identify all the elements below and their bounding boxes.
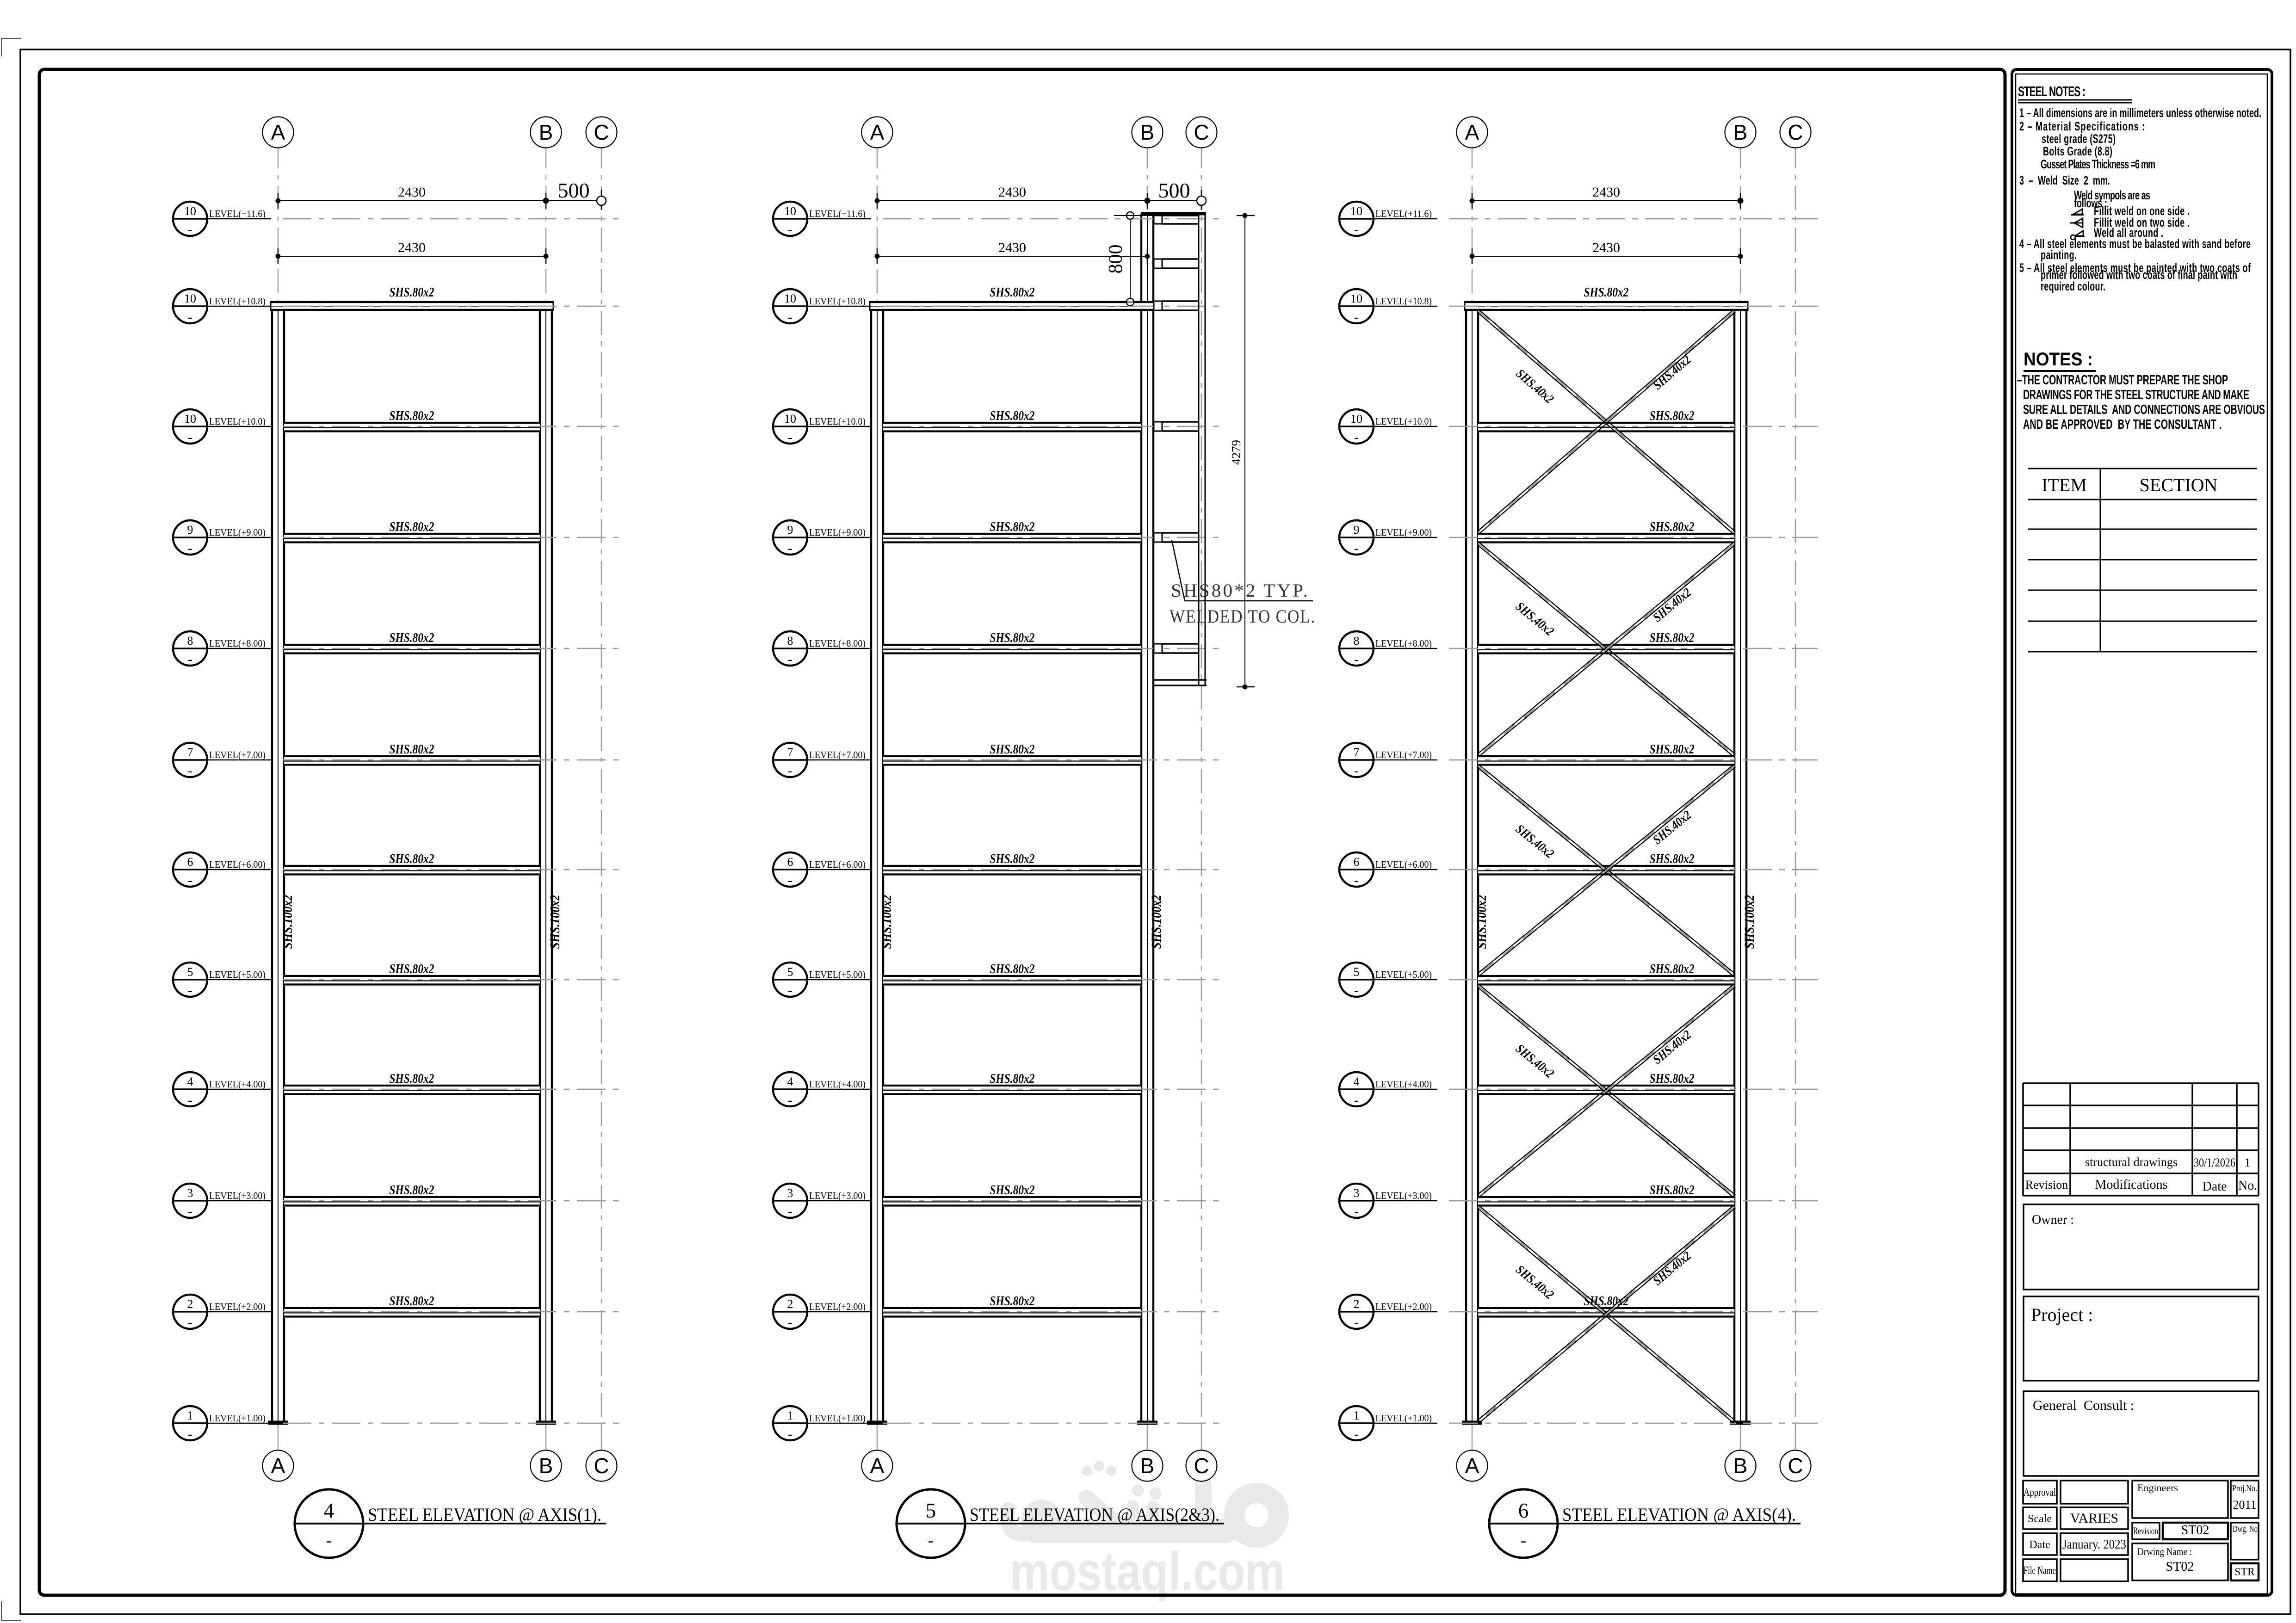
svg-text:C: C bbox=[1788, 1454, 1803, 1478]
svg-text:LEVEL(+10.8): LEVEL(+10.8) bbox=[809, 296, 866, 307]
svg-text:2430: 2430 bbox=[398, 240, 426, 255]
svg-text:-: - bbox=[788, 1092, 792, 1108]
svg-text:VARIES: VARIES bbox=[2070, 1511, 2118, 1526]
svg-text:-: - bbox=[188, 430, 192, 445]
svg-text:Engineers: Engineers bbox=[2137, 1482, 2178, 1493]
svg-text:SHS.80x2: SHS.80x2 bbox=[390, 408, 434, 423]
svg-text:painting.: painting. bbox=[2041, 247, 2077, 261]
svg-text:-: - bbox=[326, 1531, 332, 1549]
svg-text:LEVEL(+8.00): LEVEL(+8.00) bbox=[1375, 638, 1432, 649]
svg-text:-: - bbox=[788, 763, 792, 778]
svg-text:-: - bbox=[788, 1426, 792, 1442]
svg-text:6: 6 bbox=[187, 855, 193, 869]
svg-text:LEVEL(+3.00): LEVEL(+3.00) bbox=[209, 1190, 266, 1201]
svg-text:-: - bbox=[788, 222, 792, 237]
svg-text:January. 2023: January. 2023 bbox=[2062, 1537, 2126, 1552]
svg-text:B: B bbox=[539, 120, 553, 144]
svg-text:LEVEL(+11.6): LEVEL(+11.6) bbox=[809, 208, 866, 219]
svg-text:B: B bbox=[1733, 1454, 1748, 1478]
svg-text:800: 800 bbox=[1105, 245, 1126, 274]
svg-text:10: 10 bbox=[184, 412, 196, 426]
svg-text:mostaql.com: mostaql.com bbox=[1010, 1541, 1285, 1602]
svg-text:Scale: Scale bbox=[2028, 1513, 2052, 1525]
svg-text:500: 500 bbox=[558, 179, 590, 202]
svg-text:Dwg. No: Dwg. No bbox=[2233, 1524, 2258, 1534]
svg-text:LEVEL(+10.8): LEVEL(+10.8) bbox=[1375, 296, 1432, 307]
svg-text:NOTES :: NOTES : bbox=[2024, 349, 2093, 370]
svg-text:LEVEL(+5.00): LEVEL(+5.00) bbox=[809, 969, 866, 980]
svg-text:SHS80*2 TYP.: SHS80*2 TYP. bbox=[1171, 580, 1310, 601]
svg-text:A: A bbox=[870, 120, 885, 144]
svg-text:-: - bbox=[1354, 1204, 1359, 1219]
svg-text:-: - bbox=[1354, 1315, 1359, 1330]
svg-text:File Name: File Name bbox=[2024, 1565, 2056, 1577]
svg-text:SHS.80x2: SHS.80x2 bbox=[1650, 630, 1695, 645]
svg-text:LEVEL(+9.00): LEVEL(+9.00) bbox=[809, 527, 866, 538]
svg-text:-: - bbox=[188, 873, 192, 888]
svg-text:6: 6 bbox=[1518, 1499, 1529, 1522]
svg-text:steel grade (S275): steel grade (S275) bbox=[2042, 131, 2116, 145]
svg-text:LEVEL(+10.0): LEVEL(+10.0) bbox=[209, 416, 266, 427]
svg-text:SHS.80x2: SHS.80x2 bbox=[1584, 1294, 1629, 1308]
svg-text:9: 9 bbox=[187, 523, 193, 537]
svg-text:LEVEL(+6.00): LEVEL(+6.00) bbox=[1375, 859, 1432, 870]
svg-text:LEVEL(+4.00): LEVEL(+4.00) bbox=[1375, 1079, 1432, 1090]
svg-text:5: 5 bbox=[926, 1499, 936, 1522]
svg-text:5: 5 bbox=[187, 965, 193, 979]
svg-text:LEVEL(+9.00): LEVEL(+9.00) bbox=[209, 527, 266, 538]
svg-text:ST02: ST02 bbox=[2181, 1523, 2209, 1537]
svg-text:A: A bbox=[1465, 1454, 1479, 1478]
svg-text:LEVEL(+1.00): LEVEL(+1.00) bbox=[1375, 1413, 1432, 1424]
svg-text:SHS.80x2: SHS.80x2 bbox=[390, 630, 434, 645]
svg-text:LEVEL(+2.00): LEVEL(+2.00) bbox=[209, 1301, 266, 1312]
svg-text:SHS.80x2: SHS.80x2 bbox=[390, 1294, 434, 1308]
svg-text:4: 4 bbox=[187, 1075, 193, 1088]
svg-text:C: C bbox=[594, 120, 609, 144]
svg-text:9: 9 bbox=[787, 523, 793, 537]
svg-text:2011: 2011 bbox=[2233, 1498, 2256, 1512]
svg-text:-: - bbox=[1354, 652, 1359, 667]
svg-text:LEVEL(+11.6): LEVEL(+11.6) bbox=[1375, 208, 1432, 219]
svg-text:5: 5 bbox=[787, 965, 793, 979]
svg-text:SHS.80x2: SHS.80x2 bbox=[990, 519, 1035, 534]
svg-text:-: - bbox=[1354, 763, 1359, 778]
svg-text:required colour.: required colour. bbox=[2041, 279, 2105, 293]
svg-text:-: - bbox=[1354, 873, 1359, 888]
svg-text:STR: STR bbox=[2234, 1566, 2255, 1578]
svg-text:-: - bbox=[1354, 541, 1359, 556]
svg-text:LEVEL(+9.00): LEVEL(+9.00) bbox=[1375, 527, 1432, 538]
svg-text:SHS.80x2: SHS.80x2 bbox=[990, 408, 1035, 423]
svg-text:Drwing Name :: Drwing Name : bbox=[2137, 1546, 2192, 1557]
svg-text:LEVEL(+5.00): LEVEL(+5.00) bbox=[1375, 969, 1432, 980]
svg-text:5: 5 bbox=[1354, 965, 1360, 979]
svg-text:-: - bbox=[788, 873, 792, 888]
svg-text:SHS.80x2: SHS.80x2 bbox=[390, 742, 434, 757]
svg-text:4279: 4279 bbox=[1229, 440, 1243, 465]
svg-text:SHS.100x2: SHS.100x2 bbox=[1742, 895, 1757, 949]
svg-text:SHS.80x2: SHS.80x2 bbox=[1650, 519, 1695, 534]
svg-text:2430: 2430 bbox=[998, 185, 1026, 200]
svg-text:4: 4 bbox=[1354, 1075, 1360, 1088]
svg-text:LEVEL(+1.00): LEVEL(+1.00) bbox=[809, 1413, 866, 1424]
svg-text:C: C bbox=[1194, 120, 1209, 144]
svg-text:-: - bbox=[1354, 430, 1359, 445]
svg-text:WELDED TO COL.: WELDED TO COL. bbox=[1170, 606, 1316, 627]
svg-text:STEEL ELEVATION @ AXIS(4).: STEEL ELEVATION @ AXIS(4). bbox=[1562, 1504, 1796, 1525]
svg-text:STEEL ELEVATION @ AXIS(1).: STEEL ELEVATION @ AXIS(1). bbox=[368, 1504, 601, 1525]
svg-text:4: 4 bbox=[787, 1075, 793, 1088]
svg-text:Revision: Revision bbox=[2133, 1525, 2158, 1537]
svg-text:SHS.80x2: SHS.80x2 bbox=[990, 285, 1035, 300]
svg-text:LEVEL(+1.00): LEVEL(+1.00) bbox=[209, 1413, 266, 1424]
svg-text:-: - bbox=[188, 1092, 192, 1108]
svg-text:SHS.100x2: SHS.100x2 bbox=[280, 895, 295, 949]
svg-text:SHS.80x2: SHS.80x2 bbox=[1650, 742, 1695, 757]
svg-text:LEVEL(+2.00): LEVEL(+2.00) bbox=[1375, 1301, 1432, 1312]
svg-text:SECTION: SECTION bbox=[2140, 475, 2218, 495]
svg-text:Revision: Revision bbox=[2025, 1178, 2068, 1191]
svg-text:3: 3 bbox=[187, 1186, 193, 1200]
svg-text:1: 1 bbox=[1354, 1409, 1360, 1422]
svg-text:-: - bbox=[788, 983, 792, 998]
svg-text:-: - bbox=[188, 652, 192, 667]
svg-text:LEVEL(+3.00): LEVEL(+3.00) bbox=[1375, 1190, 1432, 1201]
svg-text:General Consult :: General Consult : bbox=[2033, 1398, 2134, 1413]
svg-text:LEVEL(+7.00): LEVEL(+7.00) bbox=[809, 749, 866, 760]
svg-text:SHS.80x2: SHS.80x2 bbox=[1650, 1183, 1695, 1197]
svg-text:STEEL NOTES :: STEEL NOTES : bbox=[2018, 83, 2086, 99]
svg-text:-: - bbox=[788, 309, 792, 325]
svg-text:-: - bbox=[788, 652, 792, 667]
svg-text:B: B bbox=[1733, 120, 1748, 144]
svg-text:7: 7 bbox=[787, 746, 793, 759]
svg-text:A: A bbox=[271, 120, 285, 144]
svg-text:10: 10 bbox=[784, 204, 796, 218]
svg-text:LEVEL(+8.00): LEVEL(+8.00) bbox=[209, 638, 266, 649]
svg-text:SHS.80x2: SHS.80x2 bbox=[1650, 852, 1695, 866]
svg-text:-: - bbox=[188, 541, 192, 556]
svg-text:-: - bbox=[1354, 1092, 1359, 1108]
svg-text:SHS.100x2: SHS.100x2 bbox=[547, 895, 563, 949]
svg-text:10: 10 bbox=[1350, 412, 1362, 426]
svg-text:SHS.80x2: SHS.80x2 bbox=[990, 1294, 1035, 1308]
svg-text:C: C bbox=[1194, 1454, 1209, 1478]
svg-text:SHS.80x2: SHS.80x2 bbox=[990, 1071, 1035, 1086]
svg-text:SHS.80x2: SHS.80x2 bbox=[390, 285, 434, 300]
svg-text:SHS.80x2: SHS.80x2 bbox=[990, 630, 1035, 645]
svg-text:LEVEL(+3.00): LEVEL(+3.00) bbox=[809, 1190, 866, 1201]
svg-text:-: - bbox=[188, 1204, 192, 1219]
svg-text:-: - bbox=[788, 430, 792, 445]
svg-text:2: 2 bbox=[187, 1297, 193, 1311]
svg-text:7: 7 bbox=[187, 746, 193, 759]
svg-text:-: - bbox=[1354, 222, 1359, 237]
svg-text:-: - bbox=[928, 1531, 934, 1549]
svg-text:LEVEL(+2.00): LEVEL(+2.00) bbox=[809, 1301, 866, 1312]
svg-text:-: - bbox=[188, 1315, 192, 1330]
svg-text:SHS.80x2: SHS.80x2 bbox=[1650, 1071, 1695, 1086]
svg-text:7: 7 bbox=[1354, 746, 1360, 759]
svg-text:SHS.100x2: SHS.100x2 bbox=[879, 895, 894, 949]
svg-text:SHS.80x2: SHS.80x2 bbox=[990, 962, 1035, 976]
svg-text:Approval: Approval bbox=[2024, 1487, 2056, 1499]
svg-text:SHS.80x2: SHS.80x2 bbox=[390, 1183, 434, 1197]
svg-text:C: C bbox=[594, 1454, 609, 1478]
svg-text:SHS.80x2: SHS.80x2 bbox=[1650, 408, 1695, 423]
svg-text:C: C bbox=[1788, 120, 1803, 144]
svg-text:10: 10 bbox=[184, 204, 196, 218]
svg-text:10: 10 bbox=[184, 292, 196, 305]
svg-text:SHS.80x2: SHS.80x2 bbox=[1584, 285, 1629, 300]
svg-text:LEVEL(+10.8): LEVEL(+10.8) bbox=[209, 296, 266, 307]
svg-text:SHS.80x2: SHS.80x2 bbox=[390, 1071, 434, 1086]
svg-text:LEVEL(+6.00): LEVEL(+6.00) bbox=[809, 859, 866, 870]
svg-text:LEVEL(+10.0): LEVEL(+10.0) bbox=[1375, 416, 1432, 427]
svg-text:structural drawings: structural drawings bbox=[2085, 1155, 2178, 1169]
svg-text:-: - bbox=[1354, 309, 1359, 325]
svg-text:Proj.No.: Proj.No. bbox=[2232, 1483, 2257, 1493]
svg-text:Gusset Plates Thickness =6 mm: Gusset Plates Thickness =6 mm bbox=[2041, 157, 2155, 171]
svg-text:9: 9 bbox=[1354, 523, 1360, 537]
svg-text:Date: Date bbox=[2029, 1539, 2050, 1551]
svg-text:2430: 2430 bbox=[1592, 240, 1620, 255]
svg-text:Project :: Project : bbox=[2031, 1304, 2093, 1325]
svg-text:-: - bbox=[188, 309, 192, 325]
svg-text:1: 1 bbox=[787, 1409, 793, 1422]
svg-text:1: 1 bbox=[2245, 1156, 2251, 1169]
svg-text:Modifications: Modifications bbox=[2095, 1178, 2167, 1192]
svg-text:A: A bbox=[271, 1454, 285, 1478]
svg-text:2: 2 bbox=[787, 1297, 793, 1311]
svg-text:1 – All dimensions are in mill: 1 – All dimensions are in millimeters un… bbox=[2019, 105, 2261, 119]
svg-text:LEVEL(+8.00): LEVEL(+8.00) bbox=[809, 638, 866, 649]
svg-text:Date: Date bbox=[2203, 1179, 2227, 1194]
svg-text:-: - bbox=[1521, 1531, 1526, 1549]
svg-text:B: B bbox=[1140, 120, 1155, 144]
svg-text:-: - bbox=[1354, 1426, 1359, 1442]
svg-text:2430: 2430 bbox=[398, 185, 426, 200]
svg-text:8: 8 bbox=[787, 634, 793, 648]
svg-text:-: - bbox=[788, 1204, 792, 1219]
svg-text:No.: No. bbox=[2238, 1179, 2257, 1193]
svg-text:2430: 2430 bbox=[998, 240, 1026, 255]
svg-text:A: A bbox=[1465, 120, 1479, 144]
svg-text:-: - bbox=[788, 541, 792, 556]
svg-text:1: 1 bbox=[187, 1409, 193, 1422]
svg-text:–THE CONTRACTOR MUST PREPARE T: –THE CONTRACTOR MUST PREPARE THE SHOP bbox=[2017, 373, 2228, 388]
svg-text:6: 6 bbox=[1354, 855, 1360, 869]
svg-text:-: - bbox=[188, 222, 192, 237]
svg-text:LEVEL(+4.00): LEVEL(+4.00) bbox=[209, 1079, 266, 1090]
svg-text:SHS.80x2: SHS.80x2 bbox=[390, 962, 434, 976]
svg-text:SHS.80x2: SHS.80x2 bbox=[990, 742, 1035, 757]
svg-text:-: - bbox=[188, 1426, 192, 1442]
svg-text:SHS.100x2: SHS.100x2 bbox=[1474, 895, 1489, 949]
svg-text:LEVEL(+7.00): LEVEL(+7.00) bbox=[209, 749, 266, 760]
svg-text:500: 500 bbox=[1158, 179, 1190, 202]
svg-text:LEVEL(+10.0): LEVEL(+10.0) bbox=[809, 416, 866, 427]
svg-text:-: - bbox=[188, 983, 192, 998]
svg-text:4: 4 bbox=[324, 1499, 334, 1522]
svg-text:LEVEL(+5.00): LEVEL(+5.00) bbox=[209, 969, 266, 980]
svg-text:-: - bbox=[188, 763, 192, 778]
svg-text:LEVEL(+4.00): LEVEL(+4.00) bbox=[809, 1079, 866, 1090]
svg-text:8: 8 bbox=[187, 634, 193, 648]
svg-text:SURE ALL DETAILS AND CONNECTI: SURE ALL DETAILS AND CONNECTIONS ARE OBV… bbox=[2023, 402, 2265, 417]
svg-text:STEEL ELEVATION @ AXIS(2&3).: STEEL ELEVATION @ AXIS(2&3). bbox=[970, 1504, 1219, 1525]
svg-text:8: 8 bbox=[1354, 634, 1360, 648]
svg-text:ST02: ST02 bbox=[2166, 1560, 2194, 1574]
svg-text:LEVEL(+6.00): LEVEL(+6.00) bbox=[209, 859, 266, 870]
svg-text:ITEM: ITEM bbox=[2042, 475, 2087, 495]
svg-text:SHS.80x2: SHS.80x2 bbox=[1650, 962, 1695, 976]
svg-text:Owner :: Owner : bbox=[2032, 1213, 2074, 1227]
svg-text:SHS.100x2: SHS.100x2 bbox=[1149, 895, 1164, 949]
svg-text:2: 2 bbox=[1354, 1297, 1360, 1311]
svg-text:B: B bbox=[1140, 1454, 1155, 1478]
svg-text:3 – Weld Size 2 mm.: 3 – Weld Size 2 mm. bbox=[2019, 173, 2110, 187]
svg-text:10: 10 bbox=[784, 292, 796, 305]
svg-text:LEVEL(+7.00): LEVEL(+7.00) bbox=[1375, 749, 1432, 760]
svg-text:10: 10 bbox=[1350, 292, 1362, 305]
svg-text:DRAWINGS FOR THE STEEL STRUCTU: DRAWINGS FOR THE STEEL STRUCTURE AND MAK… bbox=[2023, 388, 2249, 402]
svg-text:SHS.80x2: SHS.80x2 bbox=[390, 852, 434, 866]
svg-text:-: - bbox=[1354, 983, 1359, 998]
svg-text:SHS.80x2: SHS.80x2 bbox=[390, 519, 434, 534]
svg-text:B: B bbox=[539, 1454, 553, 1478]
svg-text:3: 3 bbox=[787, 1186, 793, 1200]
svg-text:-: - bbox=[788, 1315, 792, 1330]
svg-text:SHS.80x2: SHS.80x2 bbox=[990, 1183, 1035, 1197]
svg-text:Bolts Grade (8.8): Bolts Grade (8.8) bbox=[2043, 144, 2112, 158]
svg-text:10: 10 bbox=[784, 412, 796, 426]
svg-text:3: 3 bbox=[1354, 1186, 1360, 1200]
svg-text:AND BE APPROVED BY THE CONSUL: AND BE APPROVED BY THE CONSULTANT . bbox=[2023, 417, 2222, 432]
svg-text:30/1/2026: 30/1/2026 bbox=[2194, 1156, 2235, 1169]
svg-text:2430: 2430 bbox=[1592, 185, 1620, 200]
svg-text:SHS.80x2: SHS.80x2 bbox=[990, 852, 1035, 866]
svg-text:LEVEL(+11.6): LEVEL(+11.6) bbox=[209, 208, 266, 219]
svg-text:10: 10 bbox=[1350, 204, 1362, 218]
svg-text:A: A bbox=[870, 1454, 885, 1478]
svg-text:2 – Material Specifications :: 2 – Material Specifications : bbox=[2019, 119, 2145, 133]
svg-text:6: 6 bbox=[787, 855, 793, 869]
